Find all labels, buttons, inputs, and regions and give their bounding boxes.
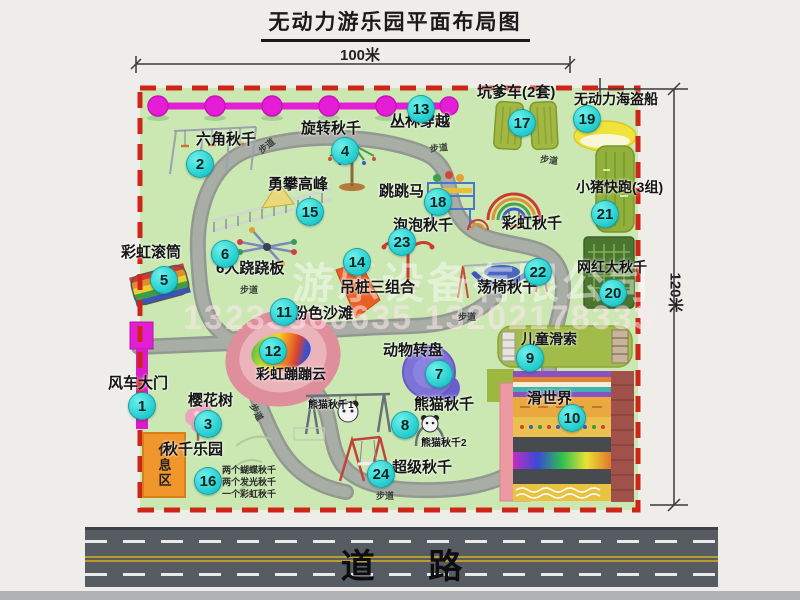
marker-8: 8 — [391, 411, 419, 439]
map-shape-part — [611, 371, 634, 502]
marker-24: 24 — [367, 460, 395, 488]
map-shape-part — [513, 437, 611, 452]
map-label: 小猪快跑(3组) — [576, 180, 663, 194]
map-shape-part — [456, 174, 464, 182]
trail-label: 步道 — [430, 143, 449, 154]
map-shape-part — [529, 425, 533, 429]
marker-16: 16 — [194, 467, 222, 495]
marker-13: 13 — [407, 95, 435, 123]
marker-4: 4 — [331, 137, 359, 165]
map-shape-part — [520, 425, 524, 429]
marker-3: 3 — [194, 410, 222, 438]
map-shape-part — [263, 243, 271, 251]
map-shape-part — [372, 157, 376, 161]
map-label: 网红大秋千 — [577, 260, 647, 274]
map-label: 彩虹滚筒 — [121, 245, 181, 260]
map-shape-part — [382, 245, 387, 250]
map-shape-part — [430, 245, 435, 250]
marker-15: 15 — [296, 198, 324, 226]
map-shape-part — [513, 484, 611, 501]
map-shape-part — [328, 157, 332, 161]
plan-canvas: 无动力游乐园平面布局图 100米 120米 — [0, 0, 800, 600]
map-shape-part — [426, 422, 429, 425]
map-shape-part — [291, 239, 297, 245]
map-label: 秋千乐园 — [163, 442, 223, 457]
map-shape-part — [249, 227, 255, 233]
map-shape-part — [650, 89, 688, 505]
map-label: 彩虹秋千 — [502, 216, 562, 231]
map-label: 熊猫秋千 — [414, 397, 474, 412]
marker-17: 17 — [508, 109, 536, 137]
trail-label: 步道 — [458, 313, 476, 322]
map-label: 熊猫秋千2 — [421, 439, 467, 449]
marker-18: 18 — [424, 188, 452, 216]
marker-20: 20 — [599, 279, 627, 307]
trail-label: 步道 — [376, 492, 394, 501]
map-shape-part — [262, 96, 282, 116]
marker-12: 12 — [259, 337, 287, 365]
bottom-strip — [0, 591, 800, 600]
marker-21: 21 — [591, 200, 619, 228]
road: 道 路 — [85, 527, 718, 587]
marker-22: 22 — [524, 258, 552, 286]
map-label: 风车大门 — [108, 376, 168, 391]
map-label: 吊桩三组合 — [340, 280, 415, 295]
map-label: 坑爹车(2套) — [477, 85, 555, 100]
map-shape-part — [513, 469, 611, 484]
map-shape-part — [433, 174, 441, 182]
marker-7: 7 — [425, 360, 453, 388]
road-label: 道 路 — [85, 539, 718, 588]
swing-park-note: 两个发光秋千 — [222, 478, 276, 487]
map-shape-part — [362, 161, 366, 165]
marker-19: 19 — [573, 105, 601, 133]
map-label: 粉色沙滩 — [293, 306, 353, 321]
map-label: 勇攀高峰 — [268, 177, 328, 192]
map-shape-part — [205, 96, 225, 116]
marker-23: 23 — [388, 228, 416, 256]
marker-2: 2 — [186, 150, 214, 178]
swing-park-note: 一个彩虹秋千 — [222, 490, 276, 499]
marker-11: 11 — [270, 298, 298, 326]
map-shape-part — [319, 96, 339, 116]
map-label: 滑世界 — [527, 391, 572, 406]
map-label: 无动力海盗船 — [574, 92, 658, 106]
map-shape-part — [502, 332, 515, 361]
marker-1: 1 — [128, 392, 156, 420]
map-shape-part — [136, 56, 570, 73]
map-shape-part — [148, 96, 168, 116]
map-label: 跳跳马 — [379, 184, 424, 199]
map-shape-part — [513, 452, 611, 469]
map-label: 樱花树 — [188, 393, 233, 408]
map-shape-part — [513, 382, 611, 387]
marker-6: 6 — [211, 240, 239, 268]
swing-park-note: 两个蝴蝶秋千 — [222, 466, 276, 475]
map-shape-part — [513, 377, 611, 382]
map-label: 动物转盘 — [383, 343, 443, 358]
slide-world-shape — [487, 369, 634, 502]
map-shape-part — [432, 422, 435, 425]
map-label: 彩虹蹦蹦云 — [256, 367, 326, 381]
marker-5: 5 — [150, 266, 178, 294]
map-shape-part — [422, 416, 438, 432]
map-label: 超级秋千 — [392, 460, 452, 475]
map-shape-part — [237, 239, 243, 245]
plan-map-graphic — [0, 0, 800, 600]
marker-14: 14 — [343, 248, 371, 276]
map-shape-part — [592, 425, 596, 429]
map-shape-part — [484, 265, 520, 279]
map-shape-part — [291, 249, 297, 255]
map-label: 六角秋千 — [196, 132, 256, 147]
marker-10: 10 — [558, 404, 586, 432]
map-label: 熊猫秋千1 — [308, 401, 354, 411]
map-shape-part — [601, 425, 605, 429]
map-shape-part — [547, 425, 551, 429]
map-shape-part — [538, 425, 542, 429]
trail-label: 步道 — [240, 286, 258, 295]
map-shape-part — [445, 171, 453, 179]
map-label: 旋转秋千 — [301, 121, 361, 136]
marker-9: 9 — [516, 344, 544, 372]
